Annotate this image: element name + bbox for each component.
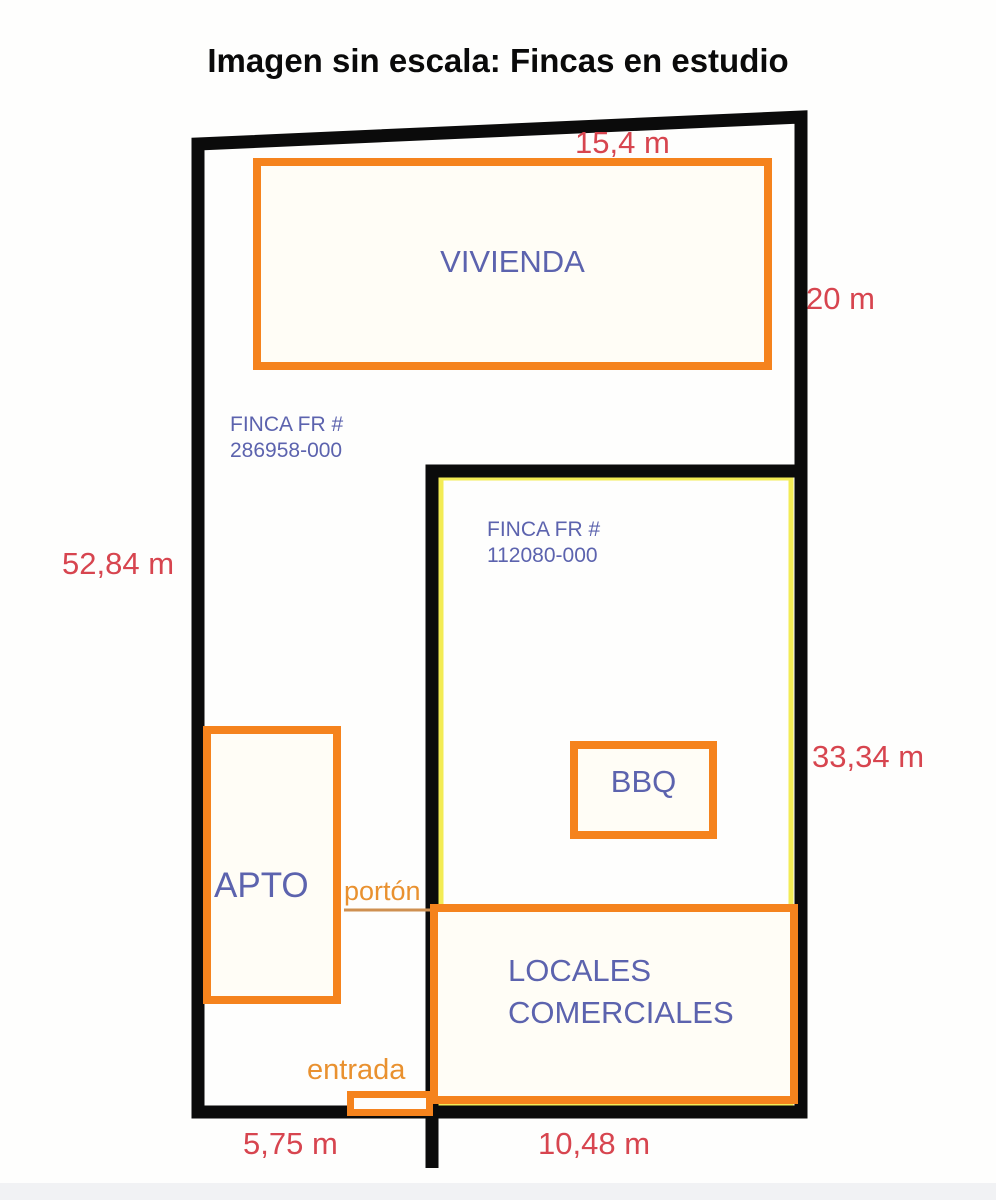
parcel-label-286958-line1: FINCA FR # — [230, 412, 343, 438]
measurement-left: 52,84 m — [62, 546, 174, 582]
building-bbq-label: BBQ — [570, 764, 717, 800]
building-apto-label: APTO — [214, 866, 309, 906]
measurement-right-lower: 33,34 m — [812, 739, 924, 775]
parcel-label-112080-line2: 112080-000 — [487, 543, 600, 569]
measurement-bottom-right: 10,48 m — [538, 1126, 650, 1162]
gate-porton-label: portón — [344, 876, 421, 907]
parcel-label-286958-line2: 286958-000 — [230, 438, 343, 464]
building-apto — [203, 726, 341, 1004]
measurement-right-upper: 20 m — [806, 281, 875, 317]
parcel-label-286958: FINCA FR # 286958-000 — [230, 412, 343, 464]
gate-entrada-label: entrada — [307, 1054, 405, 1087]
entrada-gate-marker — [347, 1091, 433, 1116]
plot-diagram: Imagen sin escala: Fincas en estudio VIV… — [0, 0, 996, 1200]
building-vivienda-label: VIVIENDA — [253, 244, 772, 280]
parcel-label-112080-line1: FINCA FR # — [487, 517, 600, 543]
parcel-label-112080: FINCA FR # 112080-000 — [487, 517, 600, 569]
building-locales-label-line1: LOCALES — [508, 950, 734, 992]
building-locales-label-line2: COMERCIALES — [508, 992, 734, 1034]
measurement-bottom-left: 5,75 m — [243, 1126, 338, 1162]
building-locales-label: LOCALES COMERCIALES — [508, 950, 734, 1034]
measurement-top: 15,4 m — [575, 125, 670, 161]
